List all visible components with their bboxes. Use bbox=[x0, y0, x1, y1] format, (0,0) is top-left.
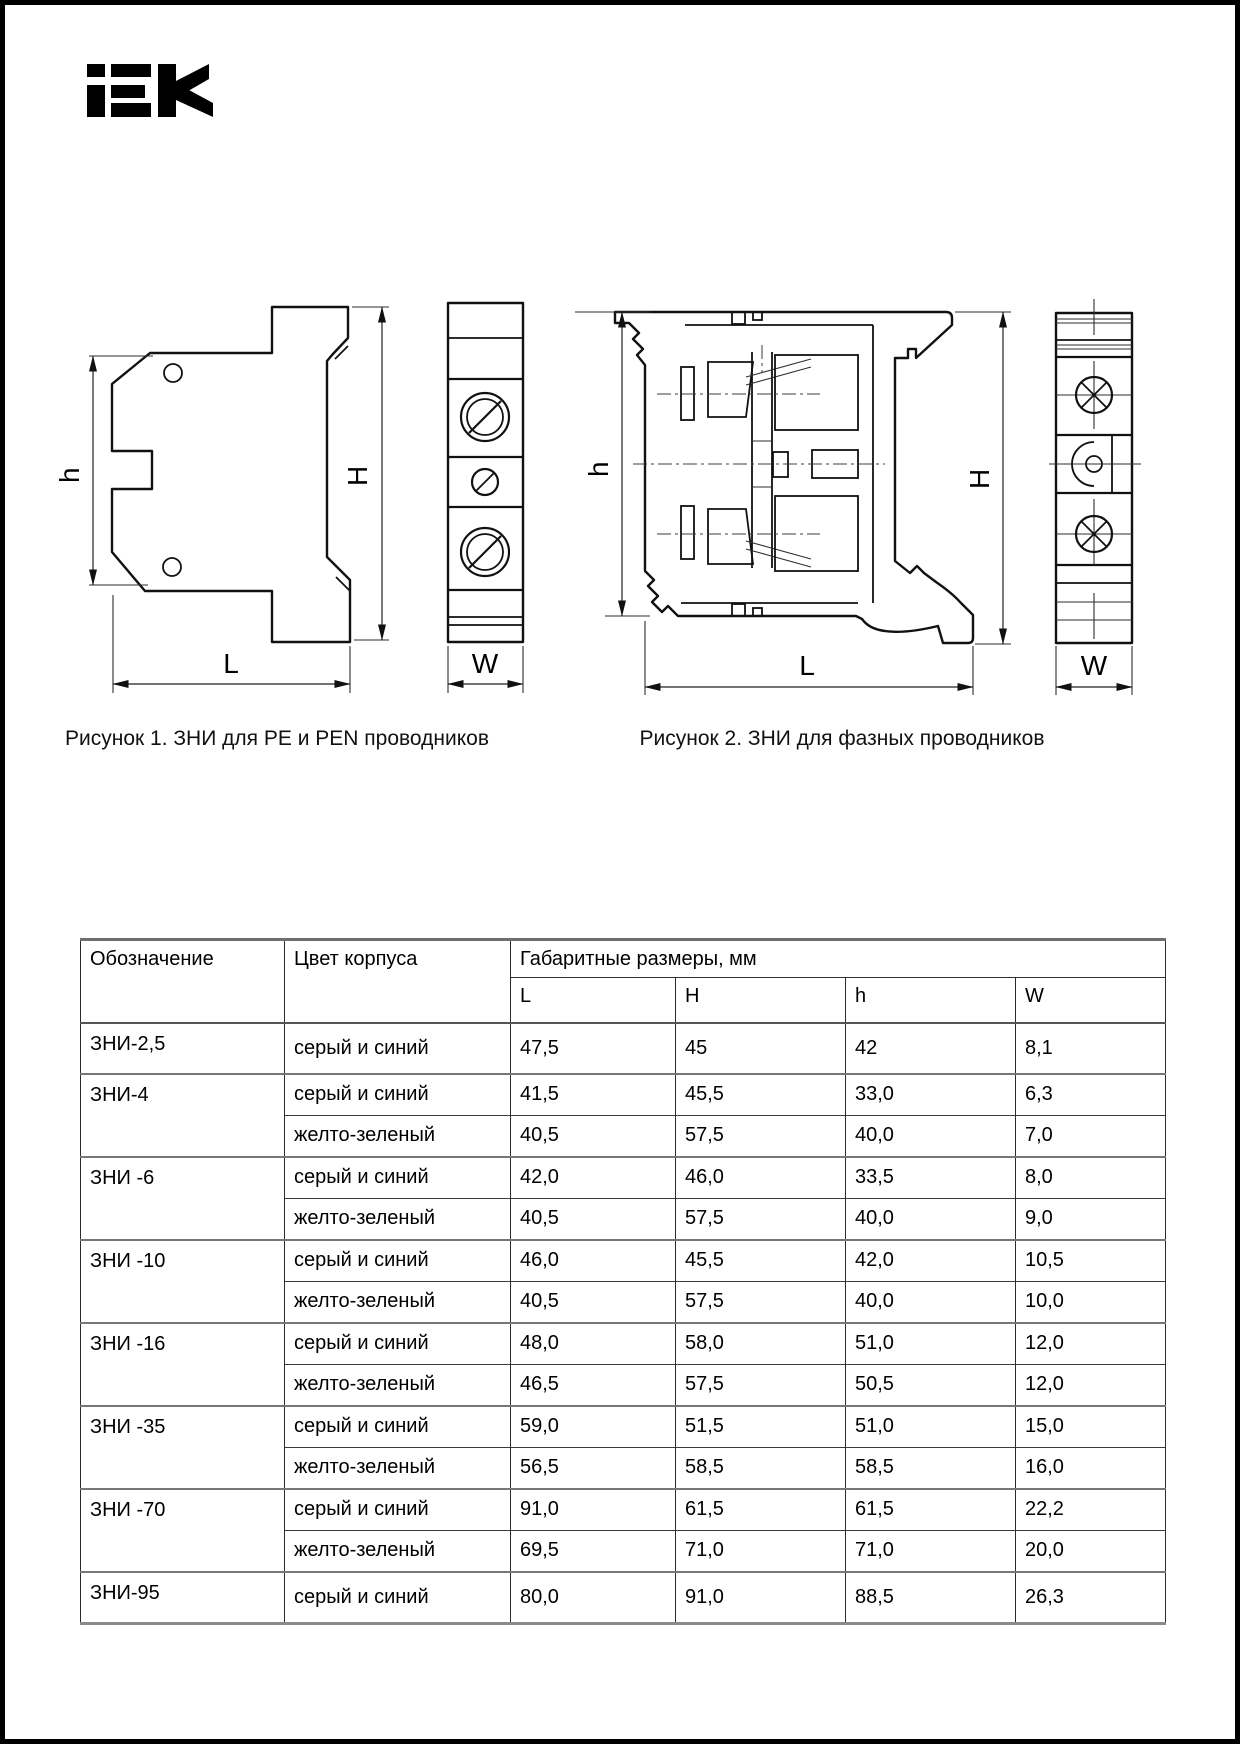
dim-H-cell: 57,5 bbox=[676, 1198, 846, 1240]
dim-W-cell: 20,0 bbox=[1016, 1530, 1166, 1572]
dim-W-cell: 12,0 bbox=[1016, 1323, 1166, 1365]
dim-H-cell: 58,5 bbox=[676, 1447, 846, 1489]
color-cell: желто-зеленый bbox=[285, 1447, 511, 1489]
dim-h-cell: 42 bbox=[846, 1023, 1016, 1074]
table-row: ЗНИ -35серый и синий59,051,551,015,0 bbox=[81, 1406, 1166, 1448]
table-row: ЗНИ -6серый и синий42,046,033,58,0 bbox=[81, 1157, 1166, 1199]
figure-1-caption: Рисунок 1. ЗНИ для PE и PEN проводников bbox=[42, 727, 512, 751]
fig2-side-view bbox=[615, 312, 973, 643]
dimensions-table-header: Обозначение Цвет корпуса Габаритные разм… bbox=[81, 940, 1166, 1023]
fig1-dim-h: h bbox=[54, 467, 85, 483]
dim-H-cell: 57,5 bbox=[676, 1281, 846, 1323]
dim-h-cell: 40,0 bbox=[846, 1115, 1016, 1157]
model-cell: ЗНИ -16 bbox=[81, 1323, 285, 1406]
header-dims-group: Габаритные размеры, мм bbox=[511, 940, 1166, 978]
datasheet-page: h H L W bbox=[0, 0, 1240, 1744]
dim-H-cell: 45 bbox=[676, 1023, 846, 1074]
dim-W-cell: 22,2 bbox=[1016, 1489, 1166, 1531]
header-dim-H: H bbox=[676, 978, 846, 1023]
model-cell: ЗНИ-4 bbox=[81, 1074, 285, 1157]
dim-H-cell: 46,0 bbox=[676, 1157, 846, 1199]
table-row: ЗНИ-4серый и синий41,545,533,06,3 bbox=[81, 1074, 1166, 1116]
dim-L-cell: 40,5 bbox=[511, 1281, 676, 1323]
header-designation: Обозначение bbox=[81, 940, 285, 1023]
dim-W-cell: 10,0 bbox=[1016, 1281, 1166, 1323]
dim-L-cell: 59,0 bbox=[511, 1406, 676, 1448]
dim-H-cell: 61,5 bbox=[676, 1489, 846, 1531]
dim-h-cell: 71,0 bbox=[846, 1530, 1016, 1572]
dim-L-cell: 47,5 bbox=[511, 1023, 676, 1074]
fig1-screw-bottom bbox=[461, 528, 509, 576]
dim-W-cell: 8,1 bbox=[1016, 1023, 1166, 1074]
color-cell: желто-зеленый bbox=[285, 1281, 511, 1323]
dim-L-cell: 40,5 bbox=[511, 1115, 676, 1157]
dim-W-cell: 12,0 bbox=[1016, 1364, 1166, 1406]
fig1-dimensions: h H L W bbox=[54, 307, 523, 693]
dim-W-cell: 16,0 bbox=[1016, 1447, 1166, 1489]
color-cell: серый и синий bbox=[285, 1406, 511, 1448]
dim-h-cell: 61,5 bbox=[846, 1489, 1016, 1531]
dim-W-cell: 9,0 bbox=[1016, 1198, 1166, 1240]
iek-logo bbox=[85, 60, 220, 120]
model-cell: ЗНИ-2,5 bbox=[81, 1023, 285, 1074]
fig2-dimensions: h H L W bbox=[575, 312, 1132, 695]
dim-h-cell: 42,0 bbox=[846, 1240, 1016, 1282]
dim-W-cell: 8,0 bbox=[1016, 1157, 1166, 1199]
dim-W-cell: 10,5 bbox=[1016, 1240, 1166, 1282]
model-cell: ЗНИ -35 bbox=[81, 1406, 285, 1489]
color-cell: серый и синий bbox=[285, 1074, 511, 1116]
dim-H-cell: 45,5 bbox=[676, 1240, 846, 1282]
fig1-screw-middle bbox=[472, 469, 498, 495]
fig1-front-view bbox=[448, 303, 523, 642]
dim-h-cell: 33,0 bbox=[846, 1074, 1016, 1116]
dim-L-cell: 91,0 bbox=[511, 1489, 676, 1531]
fig2-center-clip bbox=[1049, 435, 1141, 493]
figure-2-drawing: h H L W bbox=[545, 260, 1155, 710]
dim-L-cell: 48,0 bbox=[511, 1323, 676, 1365]
dimensions-table-body: ЗНИ-2,5серый и синий47,545428,1ЗНИ-4серы… bbox=[81, 1023, 1166, 1624]
fig1-screw-top bbox=[461, 393, 509, 441]
dim-H-cell: 51,5 bbox=[676, 1406, 846, 1448]
dim-W-cell: 26,3 bbox=[1016, 1572, 1166, 1624]
table-row: ЗНИ -70серый и синий91,061,561,522,2 bbox=[81, 1489, 1166, 1531]
dim-L-cell: 46,0 bbox=[511, 1240, 676, 1282]
dim-h-cell: 40,0 bbox=[846, 1198, 1016, 1240]
dim-h-cell: 58,5 bbox=[846, 1447, 1016, 1489]
dim-L-cell: 40,5 bbox=[511, 1198, 676, 1240]
fig1-side-view bbox=[112, 307, 350, 642]
color-cell: желто-зеленый bbox=[285, 1198, 511, 1240]
color-cell: серый и синий bbox=[285, 1157, 511, 1199]
fig2-dim-L: L bbox=[799, 650, 815, 681]
model-cell: ЗНИ -10 bbox=[81, 1240, 285, 1323]
dim-h-cell: 51,0 bbox=[846, 1406, 1016, 1448]
fig1-dim-L: L bbox=[223, 648, 239, 679]
model-cell: ЗНИ -6 bbox=[81, 1157, 285, 1240]
dim-L-cell: 41,5 bbox=[511, 1074, 676, 1116]
color-cell: серый и синий bbox=[285, 1572, 511, 1624]
table-row: ЗНИ -10серый и синий46,045,542,010,5 bbox=[81, 1240, 1166, 1282]
color-cell: желто-зеленый bbox=[285, 1115, 511, 1157]
header-dim-h: h bbox=[846, 978, 1016, 1023]
figure-2-caption: Рисунок 2. ЗНИ для фазных проводников bbox=[607, 727, 1077, 751]
color-cell: серый и синий bbox=[285, 1240, 511, 1282]
dim-H-cell: 58,0 bbox=[676, 1323, 846, 1365]
color-cell: желто-зеленый bbox=[285, 1364, 511, 1406]
color-cell: серый и синий bbox=[285, 1023, 511, 1074]
dim-h-cell: 50,5 bbox=[846, 1364, 1016, 1406]
dim-h-cell: 40,0 bbox=[846, 1281, 1016, 1323]
dim-h-cell: 33,5 bbox=[846, 1157, 1016, 1199]
fig1-dim-W: W bbox=[472, 648, 499, 679]
color-cell: серый и синий bbox=[285, 1489, 511, 1531]
dim-H-cell: 57,5 bbox=[676, 1364, 846, 1406]
header-body-color: Цвет корпуса bbox=[285, 940, 511, 1023]
table-row: ЗНИ-95серый и синий80,091,088,526,3 bbox=[81, 1572, 1166, 1624]
iek-logo-glyphs bbox=[87, 64, 213, 117]
model-cell: ЗНИ -70 bbox=[81, 1489, 285, 1572]
dim-L-cell: 80,0 bbox=[511, 1572, 676, 1624]
color-cell: серый и синий bbox=[285, 1323, 511, 1365]
dim-H-cell: 45,5 bbox=[676, 1074, 846, 1116]
dim-W-cell: 7,0 bbox=[1016, 1115, 1166, 1157]
dim-L-cell: 69,5 bbox=[511, 1530, 676, 1572]
dimensions-table: Обозначение Цвет корпуса Габаритные разм… bbox=[80, 938, 1166, 1625]
dim-H-cell: 71,0 bbox=[676, 1530, 846, 1572]
fig2-dim-H: H bbox=[964, 469, 995, 489]
dim-h-cell: 88,5 bbox=[846, 1572, 1016, 1624]
dim-L-cell: 46,5 bbox=[511, 1364, 676, 1406]
dim-L-cell: 42,0 bbox=[511, 1157, 676, 1199]
dim-H-cell: 57,5 bbox=[676, 1115, 846, 1157]
table-row: ЗНИ-2,5серый и синий47,545428,1 bbox=[81, 1023, 1166, 1074]
color-cell: желто-зеленый bbox=[285, 1530, 511, 1572]
dim-h-cell: 51,0 bbox=[846, 1323, 1016, 1365]
fig2-cross-screw-bottom bbox=[1056, 499, 1132, 639]
model-cell: ЗНИ-95 bbox=[81, 1572, 285, 1624]
fig2-dim-W: W bbox=[1081, 650, 1108, 681]
header-dim-L: L bbox=[511, 978, 676, 1023]
dim-L-cell: 56,5 bbox=[511, 1447, 676, 1489]
table-row: ЗНИ -16серый и синий48,058,051,012,0 bbox=[81, 1323, 1166, 1365]
dim-W-cell: 6,3 bbox=[1016, 1074, 1166, 1116]
dim-W-cell: 15,0 bbox=[1016, 1406, 1166, 1448]
fig2-front-view bbox=[1049, 299, 1141, 643]
fig1-dim-H: H bbox=[342, 466, 373, 486]
figure-1-drawing: h H L W bbox=[45, 260, 535, 710]
header-dim-W: W bbox=[1016, 978, 1166, 1023]
dim-H-cell: 91,0 bbox=[676, 1572, 846, 1624]
fig2-dim-h: h bbox=[583, 461, 614, 477]
